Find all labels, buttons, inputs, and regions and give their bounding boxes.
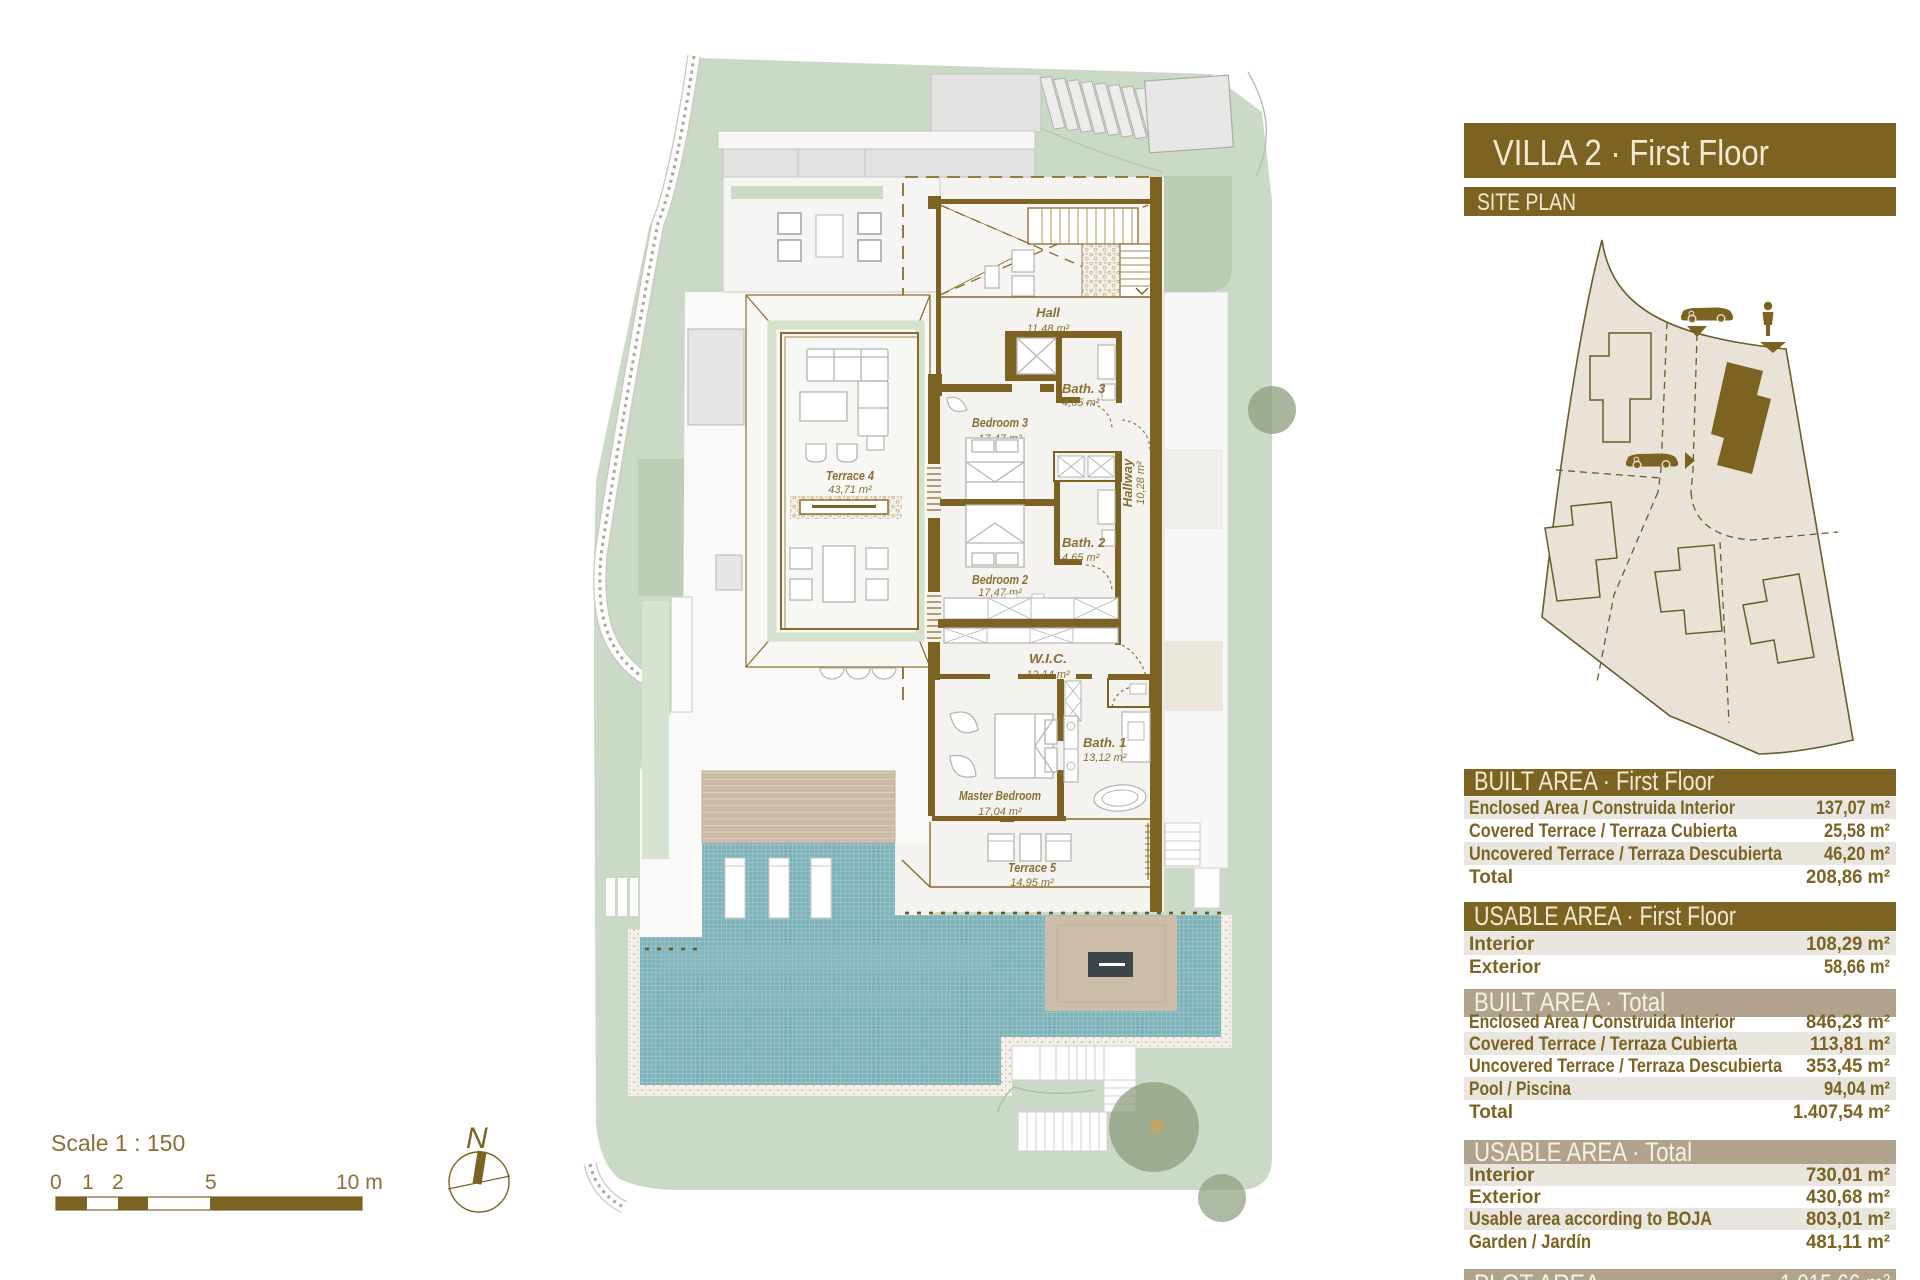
svg-text:Master Bedroom: Master Bedroom	[959, 788, 1041, 803]
svg-text:SITE PLAN: SITE PLAN	[1477, 189, 1576, 216]
svg-text:Enclosed Area / Construida Int: Enclosed Area / Construida Interior	[1469, 1012, 1736, 1033]
svg-text:Terrace 5: Terrace 5	[1008, 860, 1057, 875]
svg-text:Bath. 3: Bath. 3	[1062, 381, 1106, 396]
svg-text:Garden / Jardín: Garden / Jardín	[1469, 1232, 1591, 1253]
svg-text:94,04 m²: 94,04 m²	[1824, 1079, 1890, 1100]
svg-text:Total: Total	[1469, 1102, 1513, 1123]
svg-text:4,65 m²: 4,65 m²	[1062, 397, 1100, 409]
svg-text:1.015,66 m²: 1.015,66 m²	[1780, 1269, 1890, 1280]
svg-text:2: 2	[112, 1171, 124, 1194]
svg-text:Interior: Interior	[1469, 934, 1535, 955]
svg-text:PLOT AREA: PLOT AREA	[1474, 1269, 1600, 1280]
svg-text:4,65 m²: 4,65 m²	[1062, 552, 1100, 564]
svg-text:Hall: Hall	[1036, 305, 1060, 320]
svg-text:Pool / Piscina: Pool / Piscina	[1469, 1079, 1571, 1100]
svg-text:Exterior: Exterior	[1469, 957, 1541, 978]
svg-text:N: N	[466, 1122, 488, 1155]
svg-text:Covered Terrace / Terraza Cubi: Covered Terrace / Terraza Cubierta	[1469, 821, 1737, 842]
svg-text:Exterior: Exterior	[1469, 1187, 1541, 1208]
svg-text:Interior: Interior	[1469, 1165, 1535, 1186]
svg-text:208,86 m²: 208,86 m²	[1806, 867, 1890, 888]
svg-text:43,71 m²: 43,71 m²	[828, 484, 872, 496]
svg-text:Enclosed Area / Construida Int: Enclosed Area / Construida Interior	[1469, 798, 1736, 819]
svg-text:Bath. 2: Bath. 2	[1062, 535, 1106, 550]
svg-text:USABLE AREA · Total: USABLE AREA · Total	[1474, 1137, 1692, 1167]
svg-text:58,66 m²: 58,66 m²	[1824, 957, 1890, 978]
svg-text:5: 5	[205, 1171, 217, 1194]
svg-text:113,81 m²: 113,81 m²	[1810, 1034, 1890, 1055]
svg-text:10,28 m²: 10,28 m²	[1135, 461, 1147, 505]
svg-text:13,12 m²: 13,12 m²	[1083, 752, 1127, 764]
svg-text:Bath. 1: Bath. 1	[1083, 735, 1126, 750]
svg-text:Terrace 4: Terrace 4	[826, 468, 875, 483]
svg-text:803,01 m²: 803,01 m²	[1806, 1209, 1890, 1230]
svg-text:846,23 m²: 846,23 m²	[1806, 1012, 1890, 1033]
svg-text:Uncovered Terrace / Terraza De: Uncovered Terrace / Terraza Descubierta	[1469, 1056, 1782, 1077]
svg-text:BUILT AREA · First Floor: BUILT AREA · First Floor	[1474, 766, 1714, 796]
svg-text:Total: Total	[1469, 867, 1513, 888]
svg-text:137,07 m²: 137,07 m²	[1816, 798, 1890, 819]
svg-text:Hallway: Hallway	[1120, 458, 1135, 507]
svg-text:0: 0	[50, 1171, 62, 1194]
svg-text:Bedroom 2: Bedroom 2	[972, 572, 1029, 587]
svg-text:USABLE AREA · First Floor: USABLE AREA · First Floor	[1474, 901, 1736, 931]
svg-text:Covered Terrace / Terraza Cubi: Covered Terrace / Terraza Cubierta	[1469, 1034, 1737, 1055]
svg-text:481,11 m²: 481,11 m²	[1806, 1232, 1890, 1253]
svg-text:1.407,54 m²: 1.407,54 m²	[1793, 1102, 1890, 1123]
svg-text:730,01 m²: 730,01 m²	[1806, 1165, 1890, 1186]
svg-text:46,20 m²: 46,20 m²	[1824, 844, 1890, 865]
svg-text:108,29 m²: 108,29 m²	[1806, 934, 1890, 955]
svg-text:Uncovered Terrace / Terraza De: Uncovered Terrace / Terraza Descubierta	[1469, 844, 1782, 865]
svg-text:1: 1	[82, 1171, 94, 1194]
svg-text:10 m: 10 m	[336, 1171, 383, 1194]
svg-text:353,45 m²: 353,45 m²	[1806, 1056, 1890, 1077]
svg-text:Scale 1 : 150: Scale 1 : 150	[51, 1130, 185, 1156]
svg-text:W.I.C.: W.I.C.	[1029, 651, 1067, 666]
svg-text:Usable area according to BOJA: Usable area according to BOJA	[1469, 1209, 1712, 1230]
svg-text:430,68 m²: 430,68 m²	[1806, 1187, 1890, 1208]
svg-text:Bedroom 3: Bedroom 3	[972, 415, 1029, 430]
svg-text:25,58 m²: 25,58 m²	[1824, 821, 1890, 842]
svg-text:VILLA 2 · First Floor: VILLA 2 · First Floor	[1493, 132, 1769, 173]
